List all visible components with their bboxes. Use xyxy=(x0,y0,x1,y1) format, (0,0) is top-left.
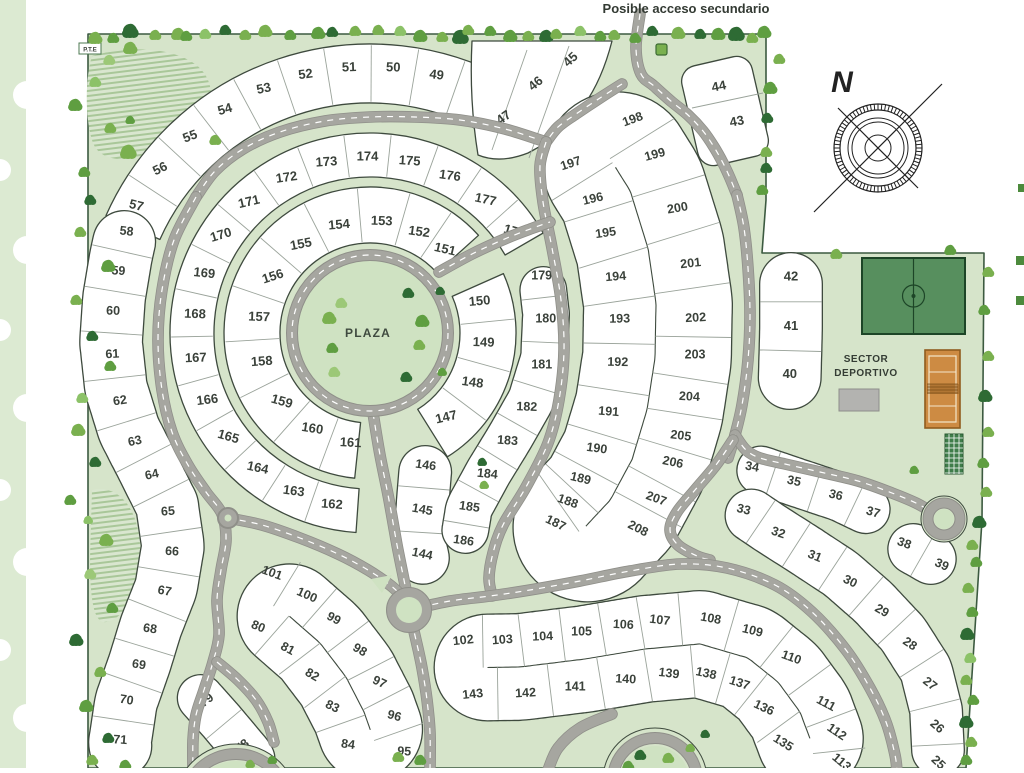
svg-text:149: 149 xyxy=(473,334,495,350)
svg-text:43: 43 xyxy=(728,112,745,129)
svg-text:193: 193 xyxy=(609,311,630,325)
svg-text:70: 70 xyxy=(119,692,135,708)
svg-text:201: 201 xyxy=(680,255,702,271)
svg-text:191: 191 xyxy=(598,404,620,419)
svg-text:141: 141 xyxy=(565,680,586,694)
svg-text:63: 63 xyxy=(127,433,144,450)
svg-text:175: 175 xyxy=(398,152,421,168)
svg-text:154: 154 xyxy=(328,216,352,233)
svg-text:169: 169 xyxy=(193,264,216,281)
svg-text:152: 152 xyxy=(407,222,431,240)
svg-text:167: 167 xyxy=(185,349,207,365)
svg-text:52: 52 xyxy=(297,66,313,83)
svg-text:161: 161 xyxy=(339,434,361,450)
svg-text:205: 205 xyxy=(670,427,692,443)
svg-text:71: 71 xyxy=(113,732,128,747)
svg-text:60: 60 xyxy=(106,303,120,317)
svg-text:140: 140 xyxy=(615,671,637,686)
svg-text:166: 166 xyxy=(196,391,219,409)
svg-text:107: 107 xyxy=(649,612,671,628)
svg-text:174: 174 xyxy=(357,148,379,163)
svg-text:84: 84 xyxy=(340,736,356,752)
svg-text:58: 58 xyxy=(119,223,134,238)
svg-text:61: 61 xyxy=(105,347,120,362)
svg-text:DEPORTIVO: DEPORTIVO xyxy=(834,368,897,379)
svg-text:192: 192 xyxy=(607,355,628,369)
svg-text:102: 102 xyxy=(452,632,474,648)
svg-text:180: 180 xyxy=(535,311,556,325)
svg-text:49: 49 xyxy=(429,66,445,83)
svg-text:181: 181 xyxy=(531,357,552,371)
svg-text:162: 162 xyxy=(321,496,344,512)
svg-text:105: 105 xyxy=(571,624,592,638)
svg-text:204: 204 xyxy=(679,389,701,404)
svg-text:176: 176 xyxy=(438,166,462,184)
svg-text:69: 69 xyxy=(131,656,147,672)
svg-text:182: 182 xyxy=(516,399,537,414)
svg-text:53: 53 xyxy=(255,79,272,97)
svg-text:50: 50 xyxy=(386,59,401,74)
svg-text:179: 179 xyxy=(531,268,552,282)
svg-text:203: 203 xyxy=(685,348,706,362)
svg-text:150: 150 xyxy=(468,292,491,309)
svg-text:146: 146 xyxy=(414,457,437,474)
svg-text:148: 148 xyxy=(461,373,485,391)
svg-text:168: 168 xyxy=(184,306,206,322)
svg-text:139: 139 xyxy=(658,665,680,681)
svg-text:106: 106 xyxy=(613,617,635,632)
svg-text:158: 158 xyxy=(250,353,273,369)
svg-text:183: 183 xyxy=(497,433,519,448)
svg-text:68: 68 xyxy=(142,621,158,637)
svg-text:P.T.E: P.T.E xyxy=(83,48,97,54)
svg-text:64: 64 xyxy=(144,466,161,483)
svg-text:186: 186 xyxy=(452,532,475,549)
svg-text:184: 184 xyxy=(476,466,498,482)
svg-text:51: 51 xyxy=(342,59,357,74)
svg-text:194: 194 xyxy=(605,269,627,284)
svg-text:195: 195 xyxy=(594,224,617,241)
svg-text:66: 66 xyxy=(165,544,180,559)
svg-text:42: 42 xyxy=(784,268,798,283)
svg-text:153: 153 xyxy=(371,213,393,229)
svg-text:103: 103 xyxy=(491,632,513,647)
svg-text:190: 190 xyxy=(586,440,609,457)
svg-text:172: 172 xyxy=(275,168,299,186)
svg-text:40: 40 xyxy=(783,366,797,381)
svg-text:202: 202 xyxy=(685,310,707,325)
svg-text:SECTOR: SECTOR xyxy=(844,354,889,365)
svg-text:62: 62 xyxy=(112,392,128,408)
svg-text:104: 104 xyxy=(532,629,553,644)
svg-text:35: 35 xyxy=(786,473,803,490)
svg-text:PLAZA: PLAZA xyxy=(345,326,391,340)
svg-text:163: 163 xyxy=(282,482,306,500)
svg-text:143: 143 xyxy=(462,686,484,702)
svg-text:N: N xyxy=(831,66,854,99)
svg-text:173: 173 xyxy=(315,153,338,169)
svg-text:67: 67 xyxy=(157,583,173,599)
svg-text:65: 65 xyxy=(161,504,176,519)
svg-text:185: 185 xyxy=(458,498,481,515)
svg-text:142: 142 xyxy=(515,685,537,700)
svg-text:41: 41 xyxy=(784,318,798,333)
svg-text:Posible acceso secundario: Posible acceso secundario xyxy=(603,1,770,16)
svg-text:157: 157 xyxy=(248,308,270,324)
